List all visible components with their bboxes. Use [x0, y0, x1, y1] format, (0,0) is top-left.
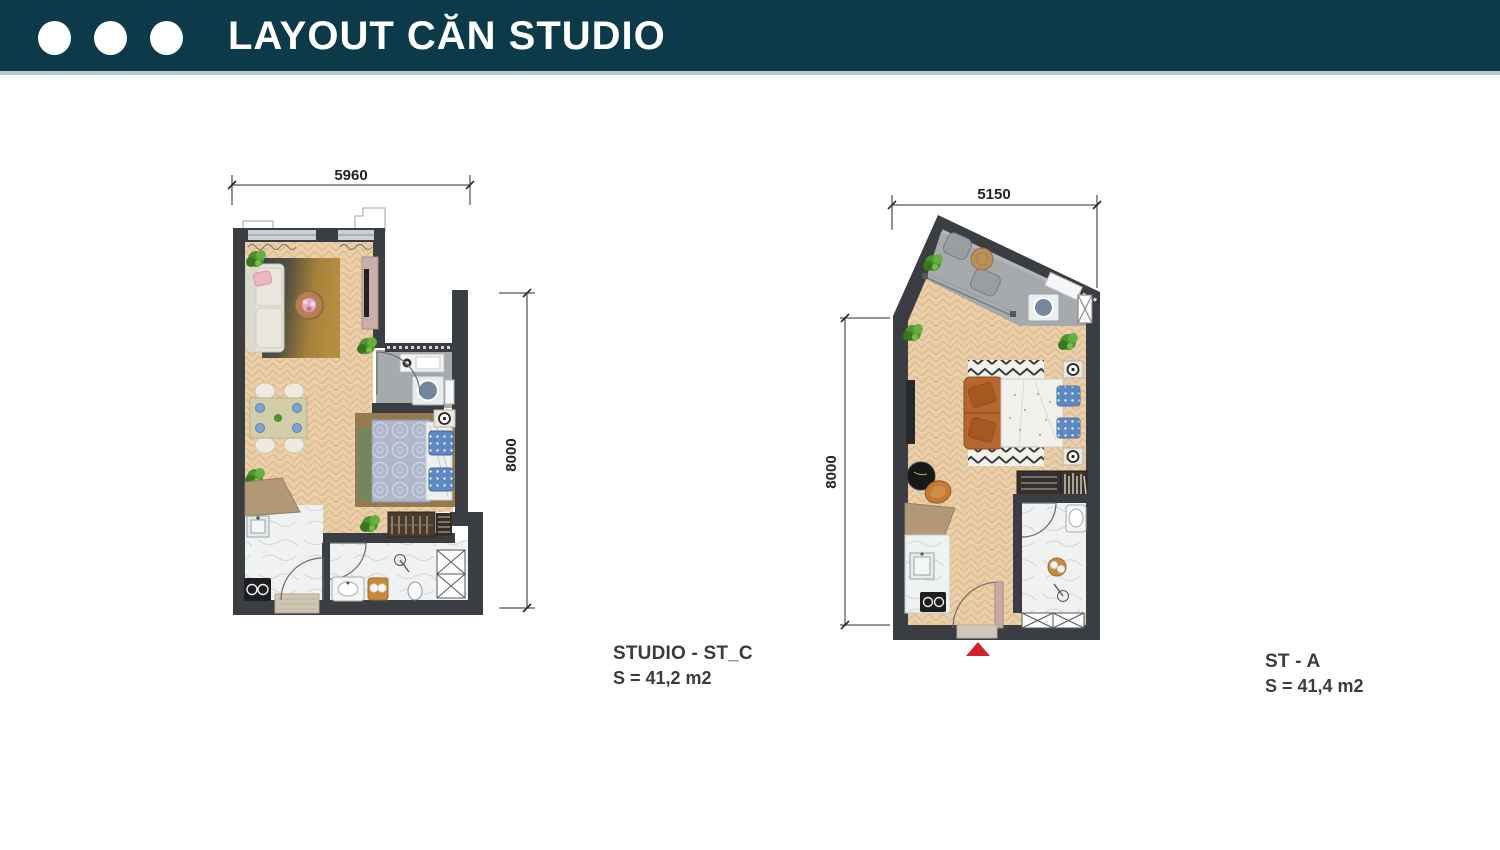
tv-icon: [906, 380, 915, 444]
pillow: [1057, 418, 1080, 438]
floor-plan-st-a: 5150 8000: [810, 180, 1120, 680]
bullet-dot-icon: [94, 21, 127, 55]
pillow: [429, 468, 453, 491]
round-table: [971, 248, 993, 270]
dim-width-label: 5150: [977, 186, 1010, 203]
entrance-arrow: [966, 642, 990, 656]
plan-label-st-a: ST - A S = 41,4 m2: [1265, 652, 1364, 697]
sofa: [964, 377, 1003, 449]
sofa: [246, 264, 284, 352]
floor-plan-studio-st-c: 5960 8000: [210, 160, 550, 650]
tv-console: [362, 257, 378, 329]
doormat: [957, 625, 997, 638]
lamp-icon: [439, 413, 450, 424]
kitchen: [905, 503, 955, 613]
header-dots: [38, 21, 183, 55]
plan-name: STUDIO - ST_C: [613, 644, 753, 665]
nightstand: [1063, 361, 1083, 378]
plan-name: ST - A: [1265, 652, 1364, 673]
page-title: LAYOUT CĂN STUDIO: [228, 14, 666, 59]
coffee-table: [295, 291, 323, 319]
door-leaf: [995, 582, 1003, 628]
shelf-unit: [436, 513, 452, 536]
tv-icon: [364, 269, 369, 317]
header-bar: LAYOUT CĂN STUDIO: [0, 0, 1500, 75]
toilet: [408, 582, 422, 600]
nightstand: [1063, 448, 1083, 465]
nightstand: [434, 410, 455, 427]
dim-width-label: 5960: [334, 167, 367, 184]
dim-height-label: 8000: [503, 438, 520, 471]
dim-height-label: 8000: [823, 455, 840, 488]
bullet-dot-icon: [150, 21, 183, 55]
plan-label-st-c: STUDIO - ST_C S = 41,2 m2: [613, 644, 753, 689]
lamp-icon: [1068, 451, 1079, 462]
pink-pillow: [253, 270, 272, 286]
lamp-icon: [1068, 364, 1079, 375]
bullet-dot-icon: [38, 21, 71, 55]
plan-area: S = 41,4 m2: [1265, 677, 1364, 697]
plan-area: S = 41,2 m2: [613, 669, 753, 689]
pillow: [429, 431, 453, 455]
tv-dresser: [1017, 471, 1087, 497]
wardrobe: [388, 512, 452, 537]
pillow: [1057, 386, 1080, 406]
